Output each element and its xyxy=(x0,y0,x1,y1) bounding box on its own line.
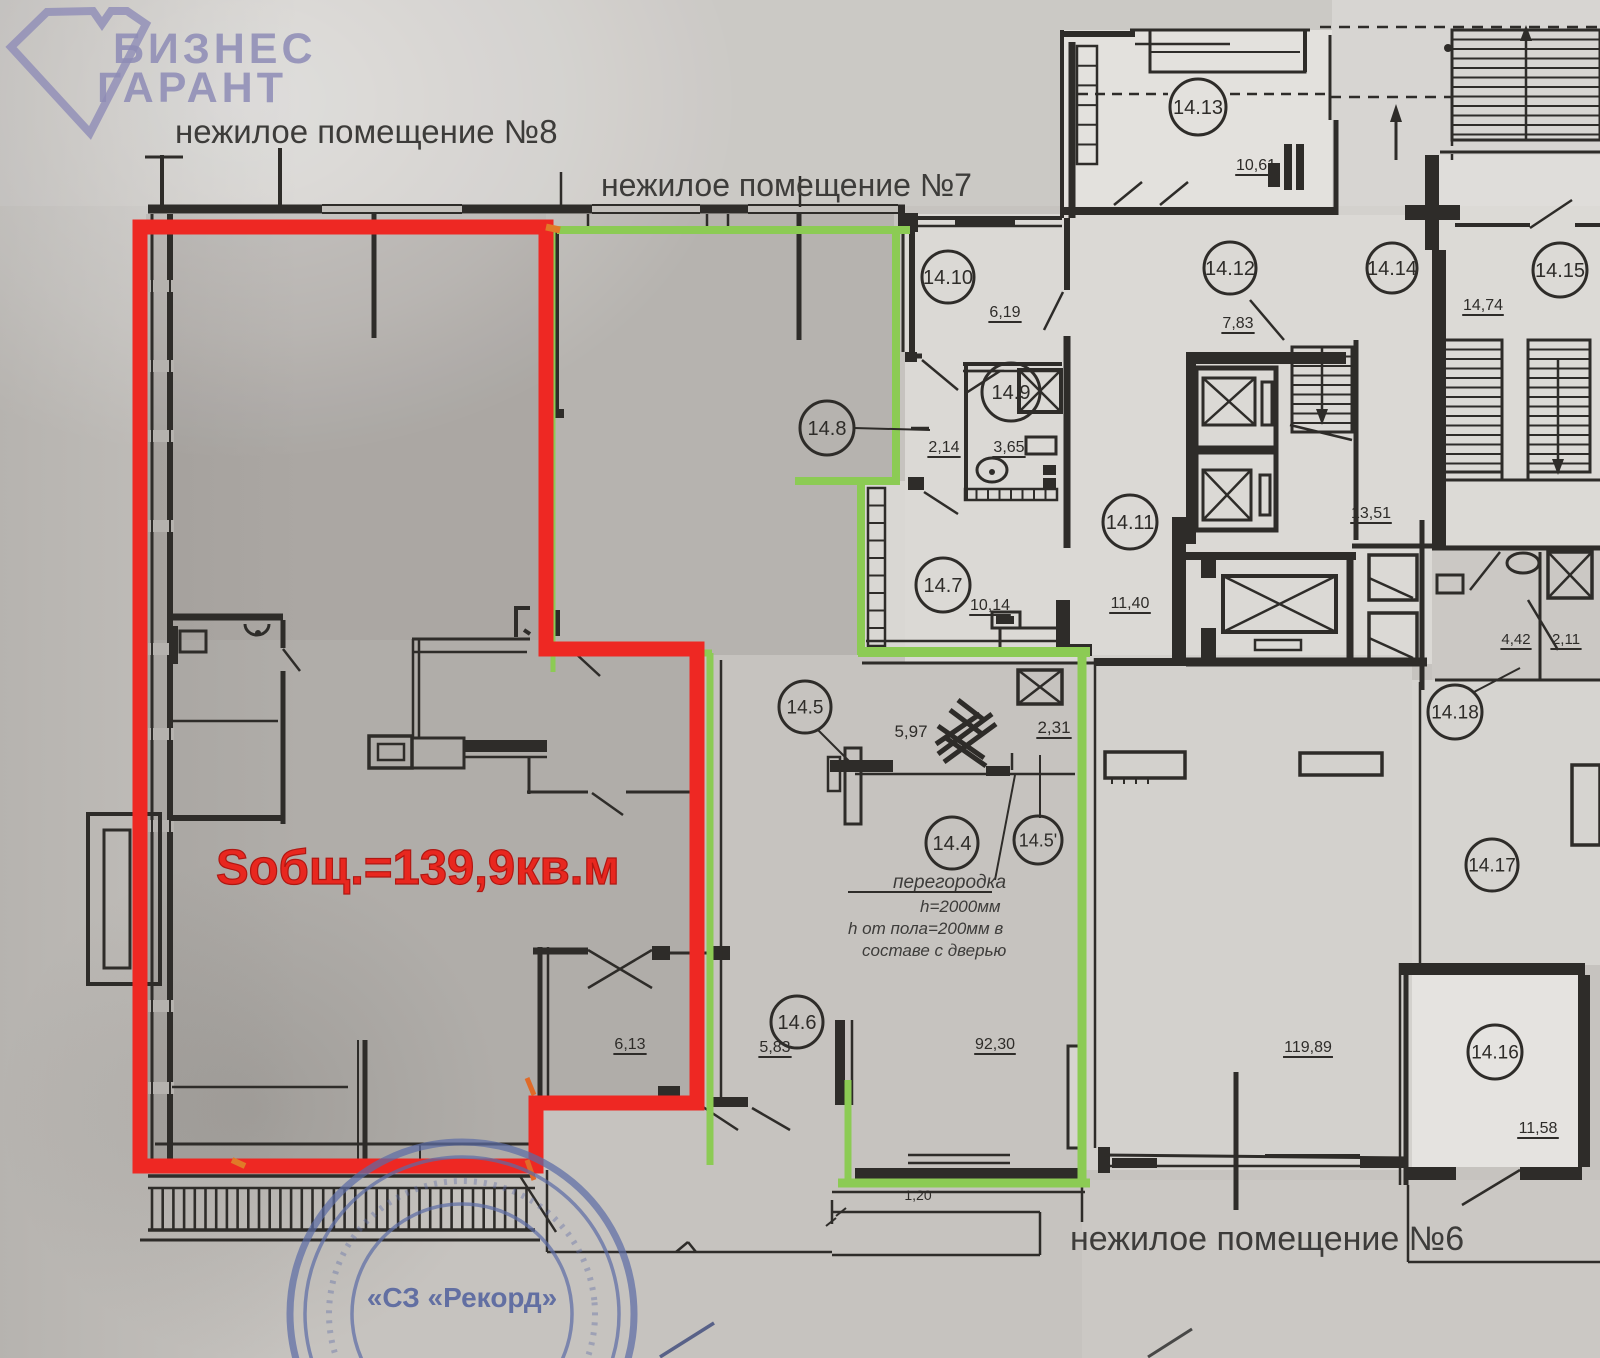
svg-text:14.8: 14.8 xyxy=(808,418,847,440)
svg-text:14.7: 14.7 xyxy=(924,575,963,597)
svg-text:нежилое помещение №6: нежилое помещение №6 xyxy=(1070,1220,1464,1258)
svg-text:h=2000мм: h=2000мм xyxy=(920,897,1001,916)
svg-text:2,11: 2,11 xyxy=(1552,631,1580,648)
svg-text:6,13: 6,13 xyxy=(614,1036,645,1053)
svg-text:14.11: 14.11 xyxy=(1106,512,1155,534)
svg-text:ГАРАНТ: ГАРАНТ xyxy=(97,64,287,112)
svg-text:14.6: 14.6 xyxy=(778,1012,817,1034)
svg-text:14.4: 14.4 xyxy=(933,833,972,855)
svg-text:4,42: 4,42 xyxy=(1501,631,1530,648)
svg-text:10,14: 10,14 xyxy=(970,597,1010,614)
svg-text:7,83: 7,83 xyxy=(1222,315,1253,332)
svg-text:14.9: 14.9 xyxy=(992,382,1031,404)
svg-text:14,74: 14,74 xyxy=(1463,297,1503,314)
svg-text:14.10: 14.10 xyxy=(923,267,973,289)
svg-text:14.17: 14.17 xyxy=(1468,856,1516,877)
svg-text:14.14: 14.14 xyxy=(1367,258,1417,280)
svg-text:14.18: 14.18 xyxy=(1431,703,1479,724)
svg-text:119,89: 119,89 xyxy=(1284,1039,1332,1056)
svg-text:перегородка: перегородка xyxy=(893,872,1006,893)
svg-text:10,61: 10,61 xyxy=(1236,157,1276,174)
svg-text:3,65: 3,65 xyxy=(993,439,1024,456)
svg-text:2,14: 2,14 xyxy=(928,439,959,456)
svg-text:6,19: 6,19 xyxy=(989,304,1020,321)
svg-text:Sобщ.=139,9кв.м: Sобщ.=139,9кв.м xyxy=(216,841,620,895)
svg-text:2,31: 2,31 xyxy=(1037,718,1070,737)
svg-text:составе с дверью: составе с дверью xyxy=(862,941,1007,960)
svg-text:5,97: 5,97 xyxy=(894,722,927,741)
svg-text:1,20: 1,20 xyxy=(904,1187,931,1203)
svg-text:13,51: 13,51 xyxy=(1351,505,1391,522)
svg-text:нежилое помещение №7: нежилое помещение №7 xyxy=(601,167,972,203)
svg-text:h от пола=200мм в: h от пола=200мм в xyxy=(848,919,1003,938)
svg-text:14.15: 14.15 xyxy=(1535,260,1585,282)
svg-text:14.16: 14.16 xyxy=(1471,1043,1519,1064)
svg-text:14.12: 14.12 xyxy=(1205,258,1255,280)
svg-text:14.5: 14.5 xyxy=(787,698,824,719)
svg-text:14.13: 14.13 xyxy=(1173,97,1223,119)
svg-text:«СЗ «Рекорд»: «СЗ «Рекорд» xyxy=(367,1282,557,1313)
svg-text:11,40: 11,40 xyxy=(1111,595,1150,612)
svg-text:нежилое помещение №8: нежилое помещение №8 xyxy=(175,113,558,150)
svg-text:92,30: 92,30 xyxy=(975,1036,1015,1053)
svg-text:5,83: 5,83 xyxy=(759,1039,790,1056)
svg-text:14.5': 14.5' xyxy=(1019,830,1057,850)
svg-text:11,58: 11,58 xyxy=(1519,1120,1558,1137)
